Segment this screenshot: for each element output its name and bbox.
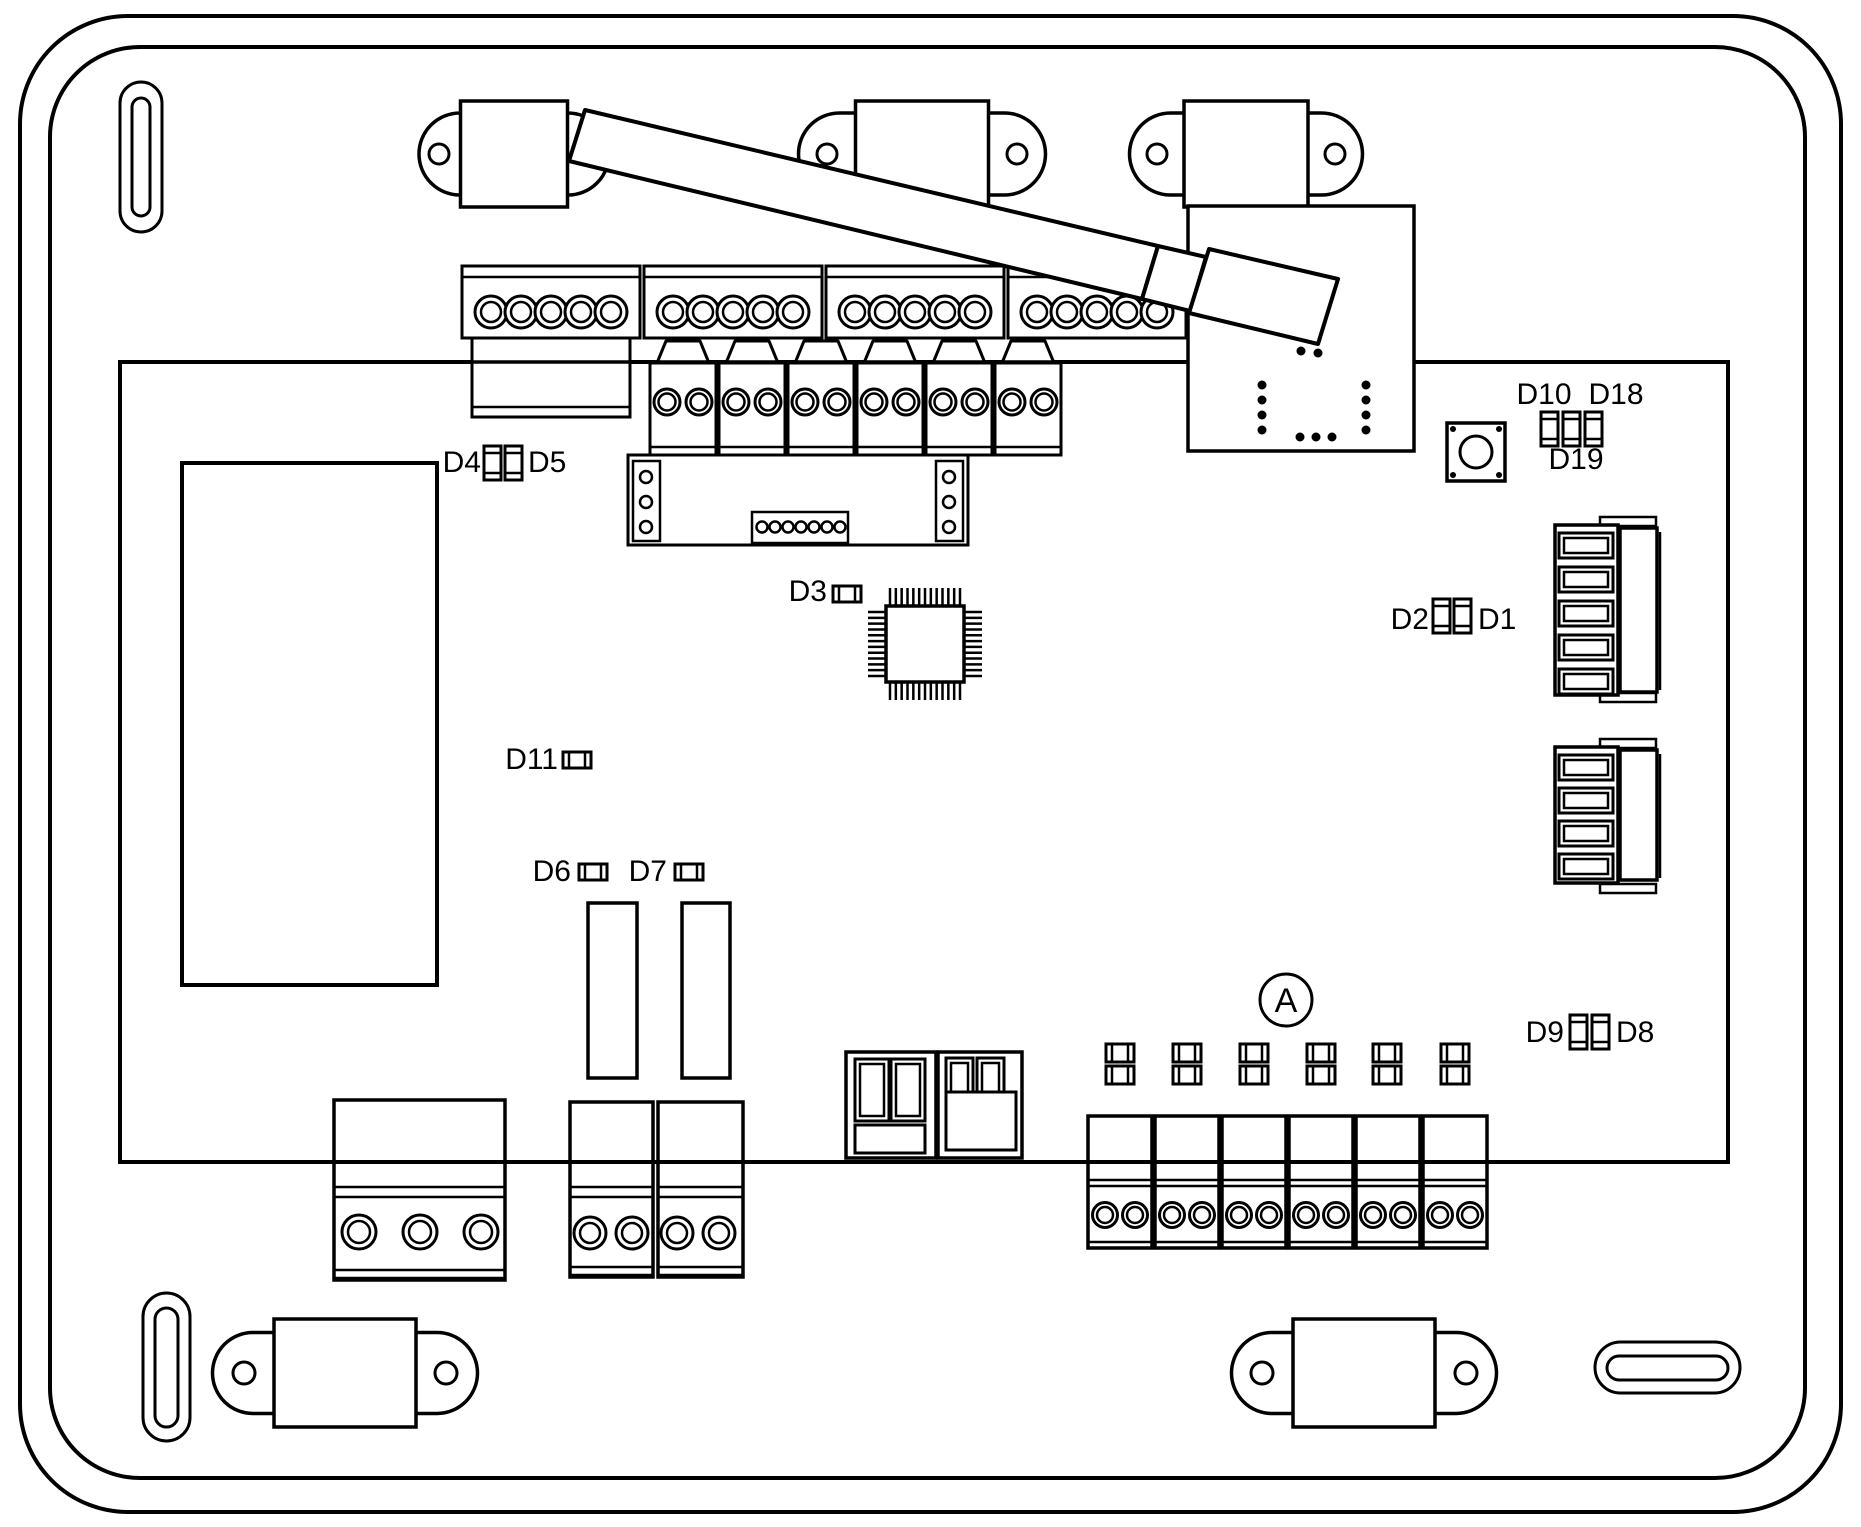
label-d7: D7 xyxy=(629,855,667,888)
label-d19: D19 xyxy=(1548,443,1603,476)
label-d3: D3 xyxy=(789,575,827,608)
label-point-a: A xyxy=(1275,982,1298,1020)
point-a-badge: A xyxy=(1260,974,1312,1026)
label-d5: D5 xyxy=(528,446,566,479)
bottom-right-terminals xyxy=(1088,1116,1487,1248)
push-button xyxy=(1447,423,1505,481)
board-diagram: D4D5D3D11D6D7D2D1D10D18D19D9D8 A xyxy=(0,0,1861,1527)
label-d11: D11 xyxy=(505,743,558,776)
transformer-outline xyxy=(182,463,437,985)
label-d1: D1 xyxy=(1478,603,1516,636)
header-connector-strip xyxy=(628,455,968,545)
middle-connectors xyxy=(846,1052,1022,1158)
label-d6: D6 xyxy=(533,855,571,888)
mcu-chip xyxy=(868,588,982,700)
label-d2: D2 xyxy=(1391,603,1429,636)
label-d8: D8 xyxy=(1616,1016,1654,1049)
label-d10: D10 xyxy=(1516,378,1571,411)
label-d9: D9 xyxy=(1526,1016,1564,1049)
label-d18: D18 xyxy=(1588,378,1643,411)
label-d4: D4 xyxy=(443,446,481,479)
page: D4D5D3D11D6D7D2D1D10D18D19D9D8 A xyxy=(0,0,1861,1527)
